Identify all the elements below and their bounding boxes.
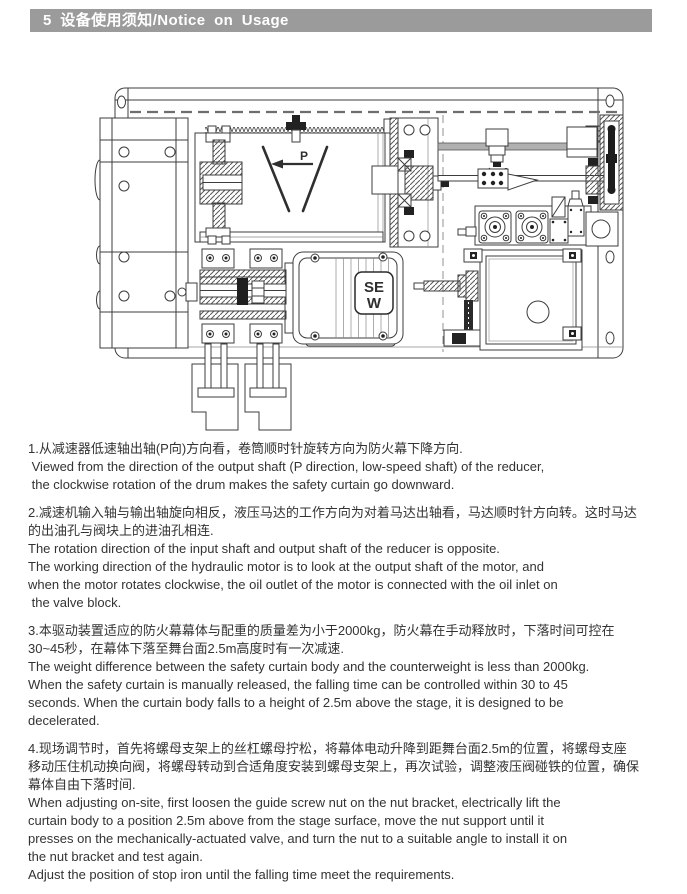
technical-drawing-figure: P: [0, 82, 687, 438]
note-paragraph-4: 4.现场调节时，首先将螺母支架上的丝杠螺母拧松，将幕体电动升降到距舞台面2.5m…: [28, 740, 676, 884]
motor-brand-label-bottom: W: [367, 295, 382, 312]
right-column-turnbuckle: [600, 115, 623, 210]
note-paragraph-1: 1.从减速器低速轴出轴(P向)方向看，卷筒顺时针旋转方向为防火幕下降方向. Vi…: [28, 440, 676, 494]
reducer-gearbox: [95, 118, 188, 348]
motor-brand-label-top: SE: [364, 279, 384, 296]
hydraulic-motor: SE W: [285, 252, 403, 346]
oil-tank: [464, 249, 582, 350]
section-header-title: 5 设备使用须知/Notice on Usage: [43, 12, 289, 29]
note-paragraph-2: 2.减速机输入轴与输出轴旋向相反，液压马达的工作方向为对着马达出轴看，马达顺时针…: [28, 504, 676, 612]
fire-curtain-drive-drawing: P: [85, 82, 645, 438]
notice-text-block: 1.从减速器低速轴出轴(P向)方向看，卷筒顺时针旋转方向为防火幕下降方向. Vi…: [28, 440, 676, 894]
note-paragraph-3: 3.本驱动装置适应的防火幕幕体与配重的质量差为小于2000kg，防火幕在手动释放…: [28, 622, 676, 730]
section-header: 5 设备使用须知/Notice on Usage: [30, 9, 652, 32]
p-direction-label: P: [300, 149, 308, 163]
